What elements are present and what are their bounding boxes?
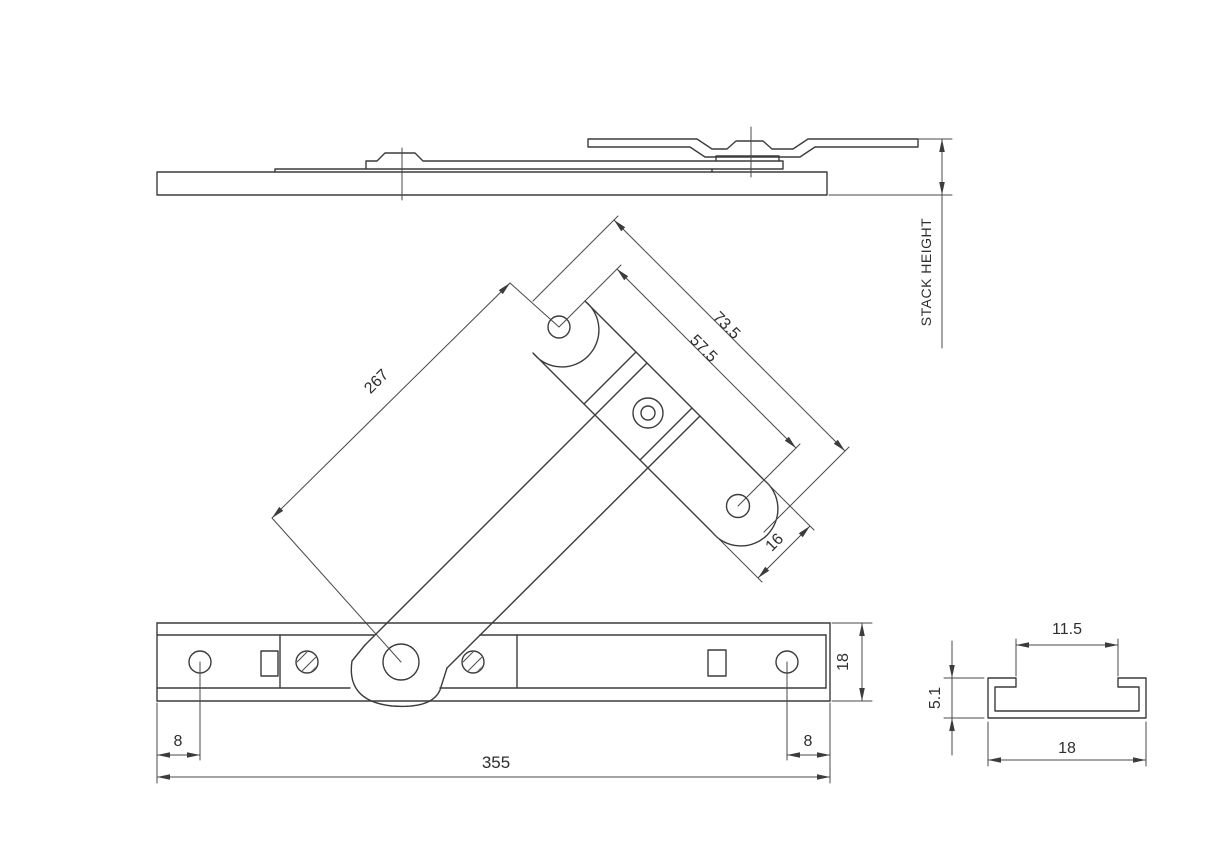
track-bar-side bbox=[157, 172, 827, 195]
dim-11-5-label: 11.5 bbox=[1052, 621, 1082, 638]
bend-line-1 bbox=[584, 352, 636, 404]
bend-line-2 bbox=[640, 408, 692, 460]
dim-8-left-label: 8 bbox=[174, 733, 183, 750]
dim-stack-height: STACK HEIGHT bbox=[829, 139, 952, 348]
cross-section-view: 11.5 5.1 18 bbox=[927, 621, 1146, 766]
dim-355-label: 355 bbox=[482, 753, 510, 772]
screw-right bbox=[462, 651, 484, 673]
main-arm-right-edge bbox=[447, 416, 700, 668]
rivet-outer bbox=[633, 398, 663, 428]
channel-profile bbox=[988, 678, 1146, 718]
dim-18-profile: 18 bbox=[988, 722, 1146, 766]
dim-16-label: 16 bbox=[763, 530, 788, 555]
pivot-knuckle bbox=[351, 645, 447, 706]
dim-5-1: 5.1 bbox=[927, 641, 984, 755]
dim-5-1-label: 5.1 bbox=[927, 687, 944, 709]
friction-hinge-drawing: STACK HEIGHT 267 bbox=[0, 0, 1210, 860]
sash-arm-side bbox=[588, 139, 918, 157]
stack-height-label: STACK HEIGHT bbox=[918, 218, 934, 326]
rivet-inner bbox=[641, 406, 655, 420]
slot-left bbox=[261, 651, 278, 676]
slot-right bbox=[708, 650, 726, 676]
dim-8-left: 8 bbox=[157, 662, 200, 783]
side-elevation-view: STACK HEIGHT bbox=[157, 127, 952, 348]
dim-8-right-label: 8 bbox=[804, 733, 813, 750]
link-plate-outline bbox=[533, 301, 778, 546]
dim-73-5: 73.5 bbox=[533, 216, 849, 532]
technical-drawing-canvas: STACK HEIGHT 267 bbox=[0, 0, 1210, 860]
dim-57-5: 57.5 bbox=[559, 265, 800, 506]
track-rail-view: 8 355 8 18 bbox=[157, 623, 872, 783]
dim-11-5: 11.5 bbox=[1016, 621, 1118, 676]
dim-18-profile-label: 18 bbox=[1058, 740, 1076, 757]
plan-view: 267 73.5 57.5 16 bbox=[272, 216, 849, 706]
dim-8-right: 8 bbox=[787, 662, 830, 760]
dim-355: 355 bbox=[157, 703, 830, 783]
screw-left bbox=[296, 651, 318, 673]
dim-16: 16 bbox=[712, 480, 814, 582]
dim-18-rail-label: 18 bbox=[835, 653, 852, 671]
main-arm-left-edge bbox=[365, 363, 647, 645]
dim-18-rail: 18 bbox=[832, 623, 872, 701]
dim-73-5-label: 73.5 bbox=[709, 309, 743, 343]
dim-57-5-label: 57.5 bbox=[686, 332, 720, 366]
dim-267: 267 bbox=[272, 283, 559, 662]
dim-267-label: 267 bbox=[361, 366, 392, 397]
